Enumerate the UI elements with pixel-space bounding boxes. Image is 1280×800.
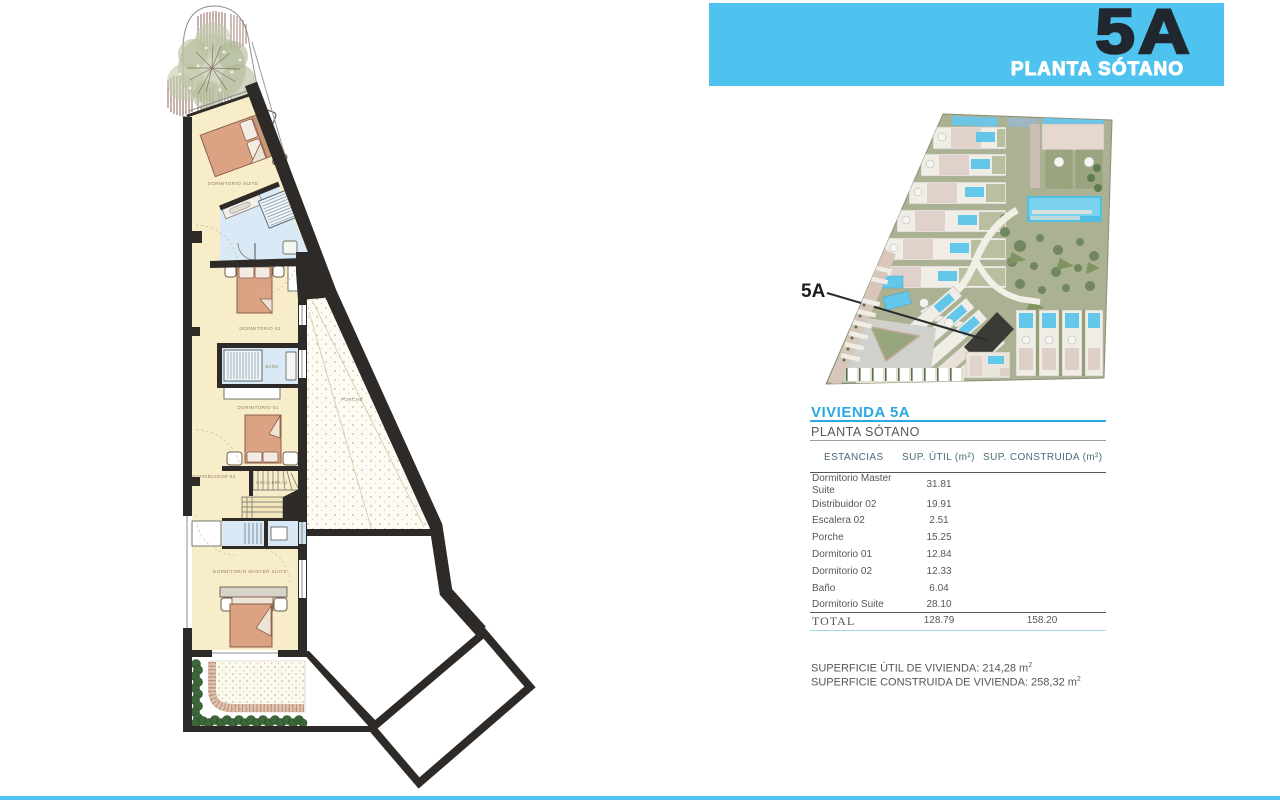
svg-text:DORMITORIO SUITE: DORMITORIO SUITE bbox=[208, 181, 259, 186]
svg-text:ESCALERA 02: ESCALERA 02 bbox=[256, 480, 288, 485]
svg-text:5A: 5A bbox=[801, 281, 826, 302]
svg-text:DORMITORIO 01: DORMITORIO 01 bbox=[237, 405, 278, 410]
svg-text:BAÑO: BAÑO bbox=[265, 364, 279, 369]
svg-text:DORMITORIO 02: DORMITORIO 02 bbox=[239, 326, 280, 331]
svg-text:DORMITORIO MASTER SUITE: DORMITORIO MASTER SUITE bbox=[213, 569, 287, 574]
svg-text:PORCHE: PORCHE bbox=[341, 397, 363, 402]
